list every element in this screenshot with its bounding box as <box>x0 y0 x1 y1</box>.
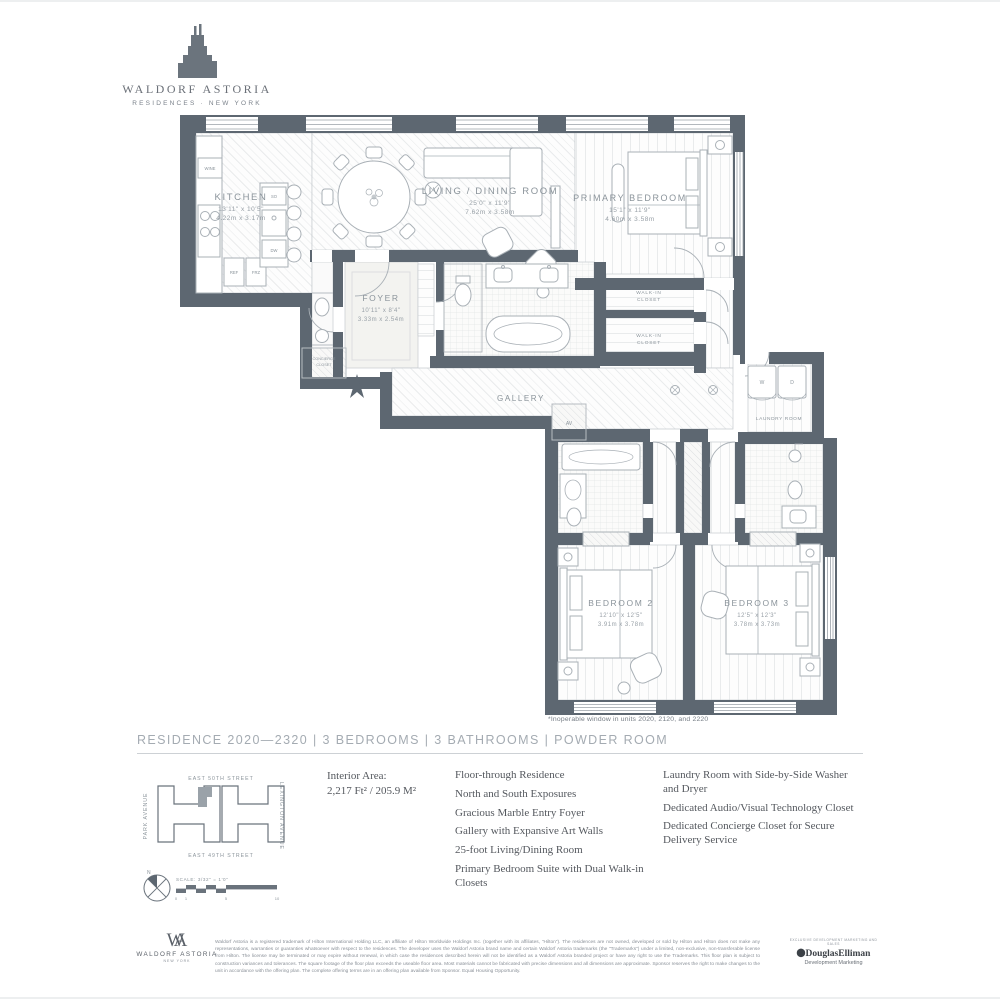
brand-subtitle: RESIDENCES · NEW YORK <box>113 100 281 107</box>
primary-bedroom-label: PRIMARY BEDROOM <box>573 193 687 203</box>
inoperable-window-footnote: *Inoperable window in units 2020, 2120, … <box>548 716 808 723</box>
kitchen-dims-ft: 13'11" x 10'5" <box>218 206 264 213</box>
laundry-label: LAUNDRY ROOM <box>756 416 802 422</box>
corridor-b-floor <box>710 442 735 533</box>
coat-closet <box>418 264 434 336</box>
frz-label: FRZ <box>252 270 261 275</box>
elliman-circle-icon: ⬤ <box>797 948 806 957</box>
toilet <box>455 284 471 306</box>
toilet-tank <box>456 276 470 283</box>
footer-brand-name: WALDORF ASTORIA <box>133 951 221 958</box>
washer-label: W <box>760 380 765 386</box>
corridor-a-floor <box>653 442 676 533</box>
bathtub <box>486 316 570 352</box>
agent-name: ⬤DouglasElliman <box>786 948 881 959</box>
kitchen-sink <box>262 210 286 236</box>
foyer-marble-floor <box>345 262 418 368</box>
footer-waldorf-logo: WA WALDORF ASTORIA NEW YORK <box>133 933 221 963</box>
nightstand <box>558 662 578 680</box>
feature-item: North and South Exposures <box>455 788 655 802</box>
sink <box>316 330 329 343</box>
page-bottom-edge <box>0 997 1000 999</box>
footer-brand-city: NEW YORK <box>133 959 221 963</box>
feature-item: Gallery with Expansive Art Walls <box>455 825 655 839</box>
monogram-a: A <box>174 930 188 951</box>
dining-table <box>322 147 426 247</box>
vanity <box>782 506 816 528</box>
residence-title: RESIDENCE 2020—2320 | 3 BEDROOMS | 3 BAT… <box>137 733 877 747</box>
dw-label: DW <box>271 248 278 253</box>
toilet <box>788 481 802 499</box>
dryer-label: D <box>790 380 794 386</box>
nightstand <box>708 238 732 256</box>
av-label: AV <box>566 421 573 427</box>
waldorf-tower-icon <box>174 24 220 78</box>
residence-location-marker <box>198 787 212 807</box>
bedroom-3-dims-ft: 12'5" x 12'3" <box>737 613 776 619</box>
interior-area-label: Interior Area: <box>327 769 452 784</box>
brand-name: WALDORF ASTORIA <box>113 82 281 97</box>
feature-item: Primary Bedroom Suite with Dual Walk-in … <box>455 863 655 891</box>
feature-item: Dedicated Concierge Closet for Secure De… <box>663 820 863 848</box>
building-footprint <box>158 786 284 842</box>
compass-north-label: N <box>147 870 151 876</box>
scale-tick-0: 0 <box>175 896 178 901</box>
wic2-label-2: CLOSET <box>637 340 661 346</box>
toilet <box>315 298 329 316</box>
ref-label: REF <box>230 270 239 275</box>
feature-item: Floor-through Residence <box>455 769 655 783</box>
bedroom-3-label: BEDROOM 3 <box>724 598 789 608</box>
concierge-label-2: CLOSET <box>316 363 332 367</box>
stool <box>287 227 301 241</box>
kitchen-label: KITCHEN <box>215 192 268 203</box>
street-bottom-label: EAST 49TH STREET <box>188 853 254 859</box>
scale-tick-10: 10 <box>275 896 280 901</box>
divider-rule <box>137 753 863 754</box>
nightstand <box>800 544 820 562</box>
nightstand <box>708 136 732 154</box>
agent-wordmark: DouglasElliman <box>806 949 871 959</box>
interior-area-value: 2,217 Ft² / 205.9 M² <box>327 784 452 799</box>
wic1-label-1: WALK-IN <box>636 290 661 296</box>
concierge-label-1: CONCIERGE <box>313 357 336 361</box>
compass-icon: N <box>144 870 170 901</box>
bedroom-3-closet <box>750 532 796 546</box>
toilet <box>567 508 581 526</box>
features-column-2: Laundry Room with Side-by-Side Washer an… <box>663 769 863 853</box>
feature-item: 25-foot Living/Dining Room <box>455 844 655 858</box>
living-dims-ft: 25'0" x 11'9" <box>469 200 511 207</box>
bedroom-2-closet <box>583 532 629 546</box>
shower-head <box>789 450 801 462</box>
features-column-1: Floor-through Residence North and South … <box>455 769 655 895</box>
feature-item: Laundry Room with Side-by-Side Washer an… <box>663 769 863 797</box>
bedroom-3-dims-m: 3.78m x 3.73m <box>734 622 780 628</box>
stool <box>287 185 301 199</box>
living-dining-label: LIVING / DINING ROOM <box>422 186 559 197</box>
wine-label: WINE <box>205 166 216 171</box>
stool <box>287 206 301 220</box>
nightstand <box>800 658 820 676</box>
bathtub <box>562 444 640 470</box>
legal-disclaimer: Waldorf Astoria is a registered trademar… <box>215 939 760 975</box>
gallery-label: GALLERY <box>497 394 545 403</box>
avenue-right-label: LEXINGTON AVENUE <box>278 782 284 850</box>
stool <box>287 248 301 262</box>
foyer-dims-ft: 10'11" x 8'4" <box>362 308 401 314</box>
wic2-label-1: WALK-IN <box>636 333 661 339</box>
scale-label: SCALE: 3/32" = 1'0" <box>176 877 228 882</box>
wa-monogram-icon: WA <box>133 933 221 949</box>
headboard <box>812 564 819 656</box>
location-map: EAST 50TH STREET EAST 49TH STREET PARK A… <box>128 762 308 912</box>
kitchen-dims-m: 4.22m x 3.17m <box>216 215 266 222</box>
feature-item: Gracious Marble Entry Foyer <box>455 807 655 821</box>
foyer-label: FOYER <box>362 293 399 303</box>
floor-plan: KITCHEN 13'11" x 10'5" 4.22m x 3.17m LIV… <box>180 113 840 737</box>
bedroom-2-dims-m: 3.91m x 3.78m <box>598 622 644 628</box>
bedroom-2-dims-ft: 12'10" x 12'5" <box>599 613 642 619</box>
agent-subtitle: Development Marketing <box>786 960 881 966</box>
scale-tick-5: 5 <box>225 896 228 901</box>
wic1-label-2: CLOSET <box>637 297 661 303</box>
page-top-edge <box>0 0 1000 2</box>
bedroom-2-label: BEDROOM 2 <box>588 598 653 608</box>
primary-dims-ft: 15'1" x 11'9" <box>609 207 651 214</box>
nightstand <box>558 548 578 566</box>
living-dims-m: 7.62m x 3.58m <box>465 209 515 216</box>
douglas-elliman-logo: EXCLUSIVE DEVELOPMENT MARKETING AND SALE… <box>786 938 881 966</box>
linen-closet <box>684 442 702 533</box>
waldorf-logo: WALDORF ASTORIA RESIDENCES · NEW YORK <box>113 24 281 107</box>
scale-tick-1: 1 <box>185 896 188 901</box>
street-top-label: EAST 50TH STREET <box>188 776 254 782</box>
side-table <box>618 682 630 694</box>
primary-dims-m: 4.60m x 3.58m <box>605 216 655 223</box>
interior-area: Interior Area: 2,217 Ft² / 205.9 M² <box>327 769 452 799</box>
foyer-dims-m: 3.33m x 2.54m <box>358 317 404 323</box>
so-label: SO <box>271 194 278 199</box>
avenue-left-label: PARK AVENUE <box>143 793 149 840</box>
scale-bar: SCALE: 3/32" = 1'0" 0 1 5 10 <box>175 877 280 901</box>
headboard <box>560 568 567 660</box>
feature-item: Dedicated Audio/Visual Technology Closet <box>663 802 863 816</box>
agent-tagline: EXCLUSIVE DEVELOPMENT MARKETING AND SALE… <box>786 938 881 946</box>
headboard <box>700 150 707 236</box>
